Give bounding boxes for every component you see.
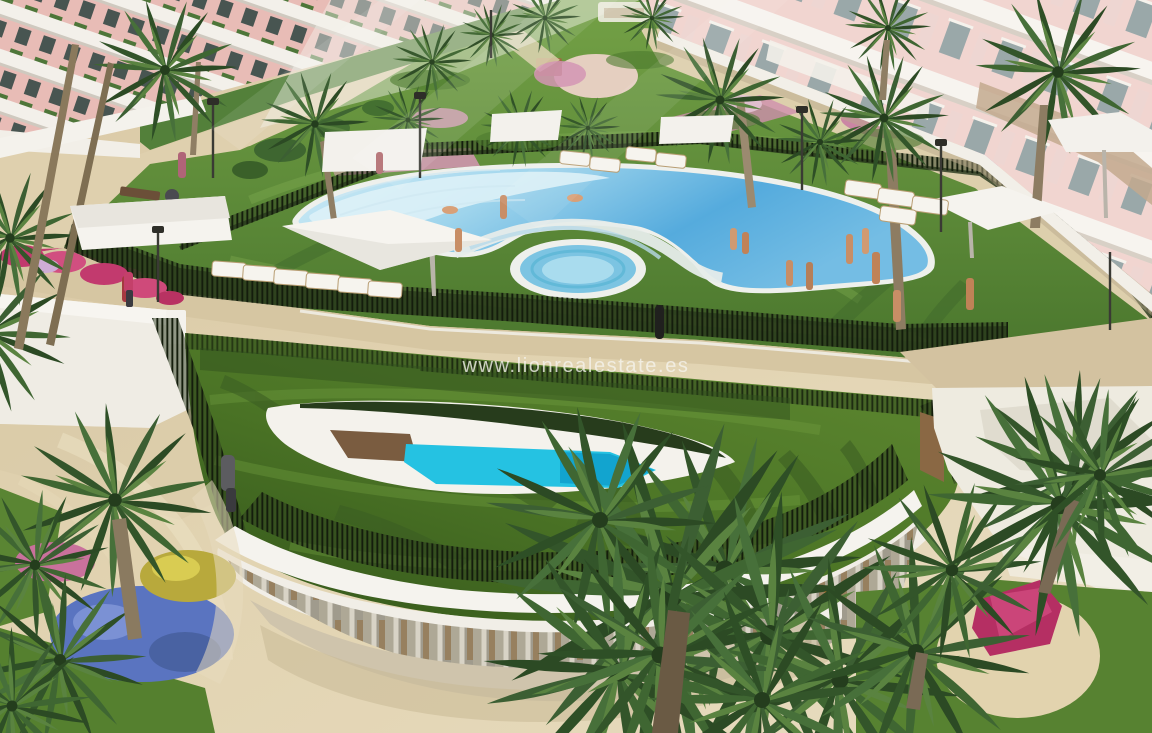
svg-text:www.lionrealestate.es: www.lionrealestate.es (461, 355, 689, 377)
